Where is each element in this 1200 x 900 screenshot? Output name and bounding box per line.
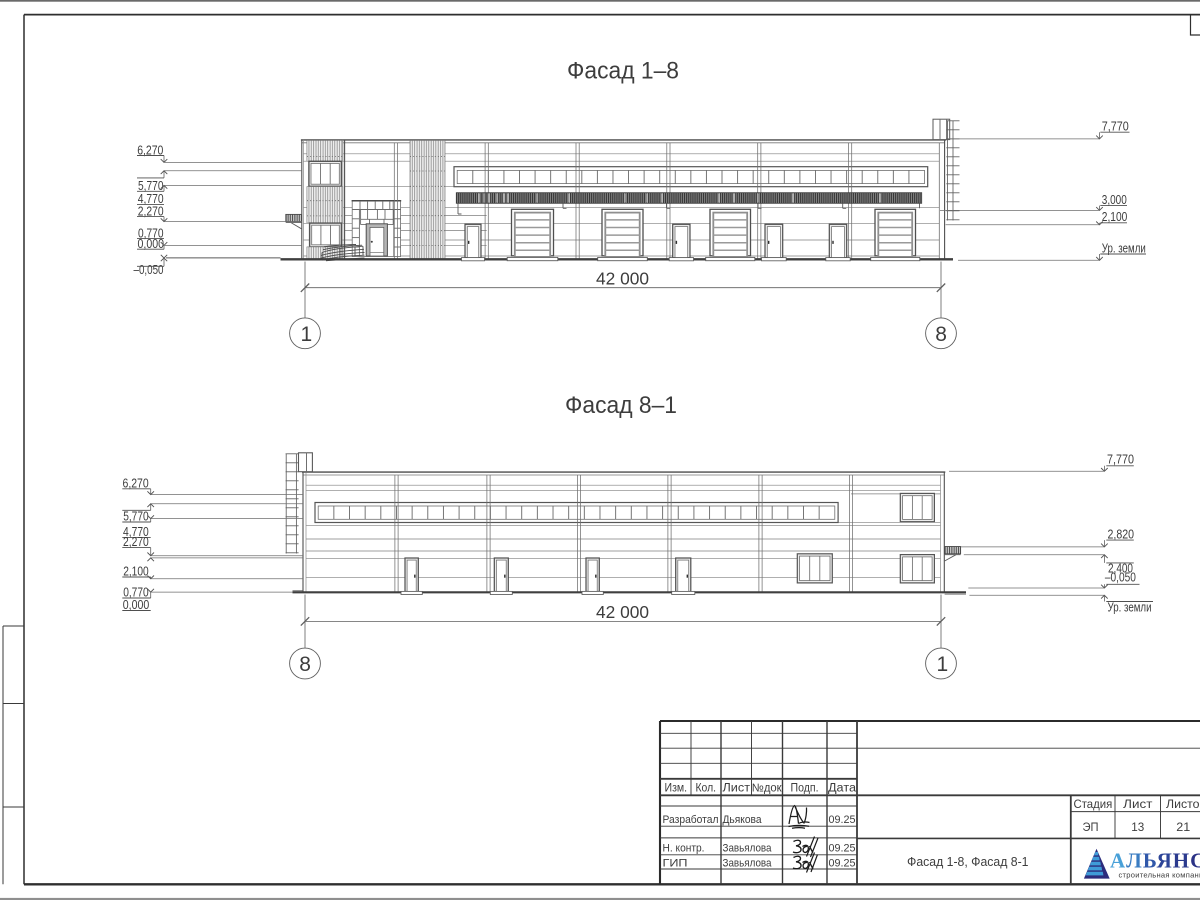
svg-text:09.25: 09.25	[829, 842, 856, 854]
svg-text:Фасад 1–8: Фасад 1–8	[567, 58, 679, 85]
svg-text:2,100: 2,100	[1102, 209, 1128, 224]
svg-text:Лист: Лист	[723, 782, 751, 794]
svg-text:0,000: 0,000	[123, 597, 150, 612]
svg-text:13: 13	[1131, 820, 1144, 834]
svg-text:Н. контр.: Н. контр.	[663, 842, 705, 854]
svg-text:7,770: 7,770	[1107, 452, 1134, 467]
svg-text:Дьякова: Дьякова	[723, 814, 763, 826]
svg-text:Завьялова: Завьялова	[723, 857, 773, 869]
svg-text:Фасад 8–1: Фасад 8–1	[565, 392, 677, 419]
svg-text:–0,050: –0,050	[134, 262, 164, 277]
svg-text:Кол.: Кол.	[696, 782, 717, 794]
svg-text:№док: №док	[752, 782, 783, 794]
svg-text:09.25: 09.25	[829, 814, 856, 826]
svg-text:Листов: Листов	[1166, 797, 1200, 811]
svg-text:2,270: 2,270	[123, 534, 149, 549]
svg-text:21: 21	[1176, 820, 1190, 834]
svg-text:Лист: Лист	[1123, 797, 1153, 811]
svg-text:Подп.: Подп.	[791, 782, 819, 794]
svg-text:7,770: 7,770	[1102, 119, 1129, 134]
svg-text:1: 1	[937, 653, 949, 676]
svg-text:8: 8	[935, 323, 947, 346]
svg-text:5,770: 5,770	[123, 509, 149, 524]
svg-text:ГИП: ГИП	[663, 857, 688, 869]
svg-text:42 000: 42 000	[596, 268, 649, 288]
svg-text:Ур. земли: Ур. земли	[1102, 240, 1146, 255]
svg-text:2,820: 2,820	[1108, 526, 1135, 541]
svg-text:2,100: 2,100	[123, 564, 149, 579]
svg-text:2,270: 2,270	[138, 203, 164, 218]
svg-text:Изм.: Изм.	[665, 782, 688, 794]
svg-text:Разработал: Разработал	[663, 814, 719, 826]
svg-text:Ур. земли: Ур. земли	[1108, 600, 1152, 615]
svg-text:1: 1	[301, 323, 313, 346]
svg-text:Дата: Дата	[828, 782, 857, 794]
svg-text:АЛЬЯНС: АЛЬЯНС	[1110, 848, 1200, 872]
svg-text:09.25: 09.25	[829, 857, 856, 869]
svg-text:3,000: 3,000	[1102, 192, 1127, 207]
svg-text:42 000: 42 000	[596, 602, 649, 622]
svg-text:Стадия: Стадия	[1074, 797, 1113, 811]
svg-text:строительная компания: строительная компания	[1119, 871, 1200, 880]
svg-text:ЭП: ЭП	[1083, 820, 1099, 834]
svg-text:Завьялова: Завьялова	[723, 842, 773, 854]
svg-text:8: 8	[299, 653, 311, 676]
svg-text:–0,050: –0,050	[1105, 570, 1136, 585]
svg-text:Фасад 1-8, Фасад 8-1: Фасад 1-8, Фасад 8-1	[907, 854, 1029, 869]
svg-text:6,270: 6,270	[123, 476, 149, 491]
